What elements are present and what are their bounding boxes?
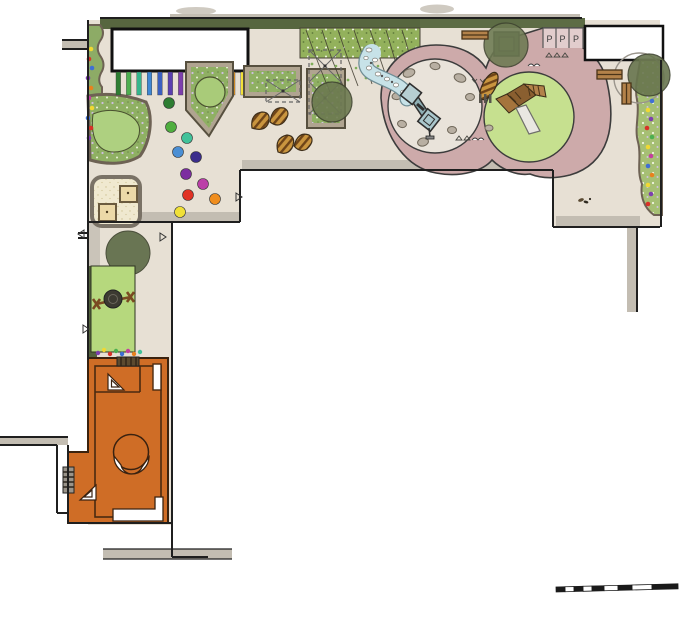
plan-mark (646, 164, 651, 169)
plan-mark (114, 349, 118, 353)
plan-mark (120, 352, 124, 356)
plan-mark (646, 202, 651, 207)
plan-mark (604, 585, 618, 590)
site-plan-drawing: P P P (0, 0, 700, 619)
plan-mark (191, 152, 202, 163)
plan-mark (210, 194, 221, 205)
plan-mark (574, 586, 583, 591)
plan-mark (645, 126, 650, 131)
room-door (153, 364, 161, 390)
plan-mark (183, 190, 194, 201)
tree-icon (628, 54, 670, 96)
parking-bays: P P P (543, 28, 583, 48)
scale-bar (556, 584, 678, 592)
plan-mark (132, 352, 136, 356)
plan-mark (650, 99, 655, 104)
plan-mark (168, 72, 173, 95)
plan-mark (198, 179, 209, 190)
plan-mark (166, 122, 177, 133)
plan-mark (646, 183, 651, 188)
plan-mark (108, 352, 112, 356)
plan-mark (182, 133, 193, 144)
plan-mark (175, 207, 186, 218)
sand-play-circle (388, 59, 482, 153)
plan-mark (646, 108, 651, 113)
plan-mark (96, 351, 100, 355)
plan-mark (126, 72, 131, 95)
plan-mark (652, 584, 678, 590)
plan-mark (646, 145, 651, 150)
site-plan-page: P P P (0, 0, 700, 619)
plan-mark (89, 86, 94, 91)
plan-mark (649, 154, 654, 159)
lawn (88, 266, 142, 362)
plan-mark (649, 117, 654, 122)
plan-mark (173, 147, 184, 158)
plan-mark (164, 98, 175, 109)
plan-mark (583, 586, 592, 591)
plan-mark (147, 72, 152, 95)
tree-icon (195, 77, 225, 107)
plan-mark (181, 169, 192, 180)
plan-mark (138, 350, 142, 354)
plan-mark (650, 173, 655, 178)
plan-mark (565, 587, 574, 592)
square-tree-planter (484, 23, 528, 67)
plan-mark (592, 586, 604, 591)
sand-pit (92, 177, 140, 226)
plan-mark (90, 106, 95, 111)
plan-mark (632, 584, 652, 590)
plan-mark (137, 72, 142, 95)
plan-mark (126, 349, 130, 353)
plan-mark (89, 47, 94, 52)
plan-mark (90, 66, 95, 71)
plan-mark (649, 192, 654, 197)
raised-planter-a (244, 66, 301, 97)
plan-mark (102, 348, 106, 352)
parking-bay-label: P (559, 34, 565, 44)
parking-bay-label: P (573, 34, 579, 44)
plan-mark (89, 126, 94, 131)
tree-icon (484, 23, 528, 67)
plan-mark (158, 72, 163, 95)
orange-room (63, 357, 168, 523)
parking-bay-label: P (546, 34, 552, 44)
plan-mark (116, 72, 121, 95)
plan-mark (618, 585, 632, 590)
plan-mark (178, 72, 183, 95)
plan-mark (556, 587, 565, 592)
plan-mark (650, 135, 655, 140)
